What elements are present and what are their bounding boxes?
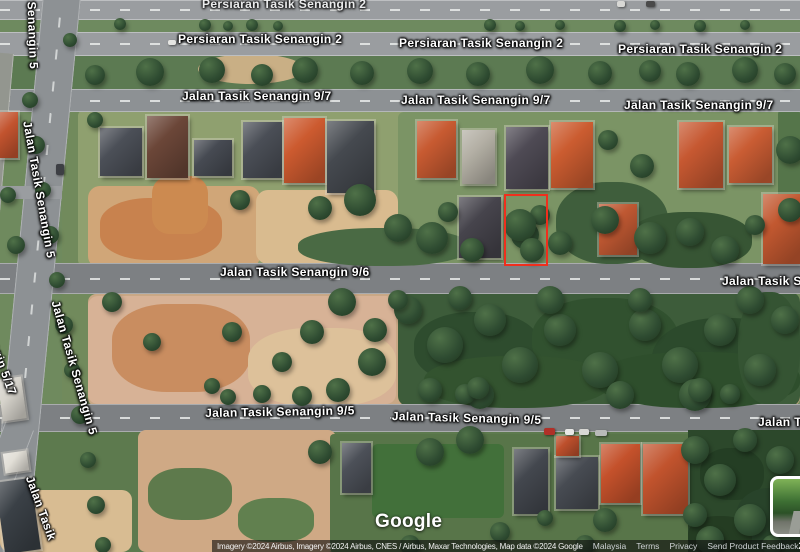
highlighted-parcel-outline (504, 194, 548, 266)
house-roof (462, 130, 495, 184)
tree (199, 19, 211, 31)
tree (515, 21, 525, 31)
house-roof (679, 122, 723, 188)
tree (683, 503, 707, 527)
tree (251, 64, 273, 86)
tree (220, 389, 236, 405)
tree (681, 436, 709, 464)
house-roof (194, 140, 232, 176)
tree (778, 198, 800, 222)
house-roof (342, 443, 371, 493)
tree (87, 112, 103, 128)
tree (416, 438, 444, 466)
tree (49, 272, 65, 288)
tree (484, 19, 496, 31)
tree (734, 504, 766, 536)
tree (416, 222, 448, 254)
tree (223, 21, 233, 31)
tree (745, 215, 765, 235)
tree (363, 318, 387, 342)
tree (771, 306, 799, 334)
house-roof (327, 121, 374, 193)
road-label: Jalan Tasik Senangin 9/5 (205, 403, 355, 420)
road-label: Persiaran Tasik Senangin 2 (618, 42, 782, 56)
tree (7, 236, 25, 254)
tree (222, 322, 242, 342)
tree (650, 20, 660, 30)
tree (143, 333, 161, 351)
tree (466, 62, 490, 86)
house-roof (147, 116, 188, 178)
tree (326, 378, 350, 402)
tree (308, 440, 332, 464)
tree (588, 61, 612, 85)
road-label: Persiaran Tasik Senangin 2 (202, 0, 366, 11)
tree (606, 381, 634, 409)
tree (85, 65, 105, 85)
tree (246, 19, 258, 31)
house-roof (601, 444, 640, 503)
terms-link[interactable]: Terms (636, 541, 659, 551)
road-label: Persiaran Tasik Senangin 2 (178, 32, 342, 46)
tree (639, 60, 661, 82)
tree (688, 378, 712, 402)
tree (704, 314, 736, 346)
tree (80, 452, 96, 468)
road-label: Jalan Tasik Senangin 9/7 (624, 98, 774, 112)
tree (776, 136, 800, 164)
car (168, 40, 176, 45)
tree (63, 33, 77, 47)
tree (537, 510, 553, 526)
tree (736, 286, 764, 314)
tree (711, 236, 739, 264)
terrain-detail (0, 0, 800, 552)
tree (114, 18, 126, 30)
tree (308, 196, 332, 220)
car (617, 1, 625, 7)
satellite-map-canvas[interactable]: Persiaran Tasik Senangin 2 Persiaran Tas… (0, 0, 800, 552)
house-roof (514, 449, 548, 514)
tree (662, 347, 698, 383)
tree (230, 190, 250, 210)
road-label: Jalan Tasik Senangin 9/6 (220, 265, 370, 279)
tree (630, 154, 654, 178)
region-link[interactable]: Malaysia (593, 541, 627, 551)
tree (694, 20, 706, 32)
tree (460, 238, 484, 262)
tree (350, 61, 374, 85)
tree (490, 522, 510, 542)
tree (676, 218, 704, 246)
street-view-preview[interactable] (770, 476, 800, 537)
tree (740, 20, 750, 30)
house-roof (3, 450, 30, 473)
tree (544, 314, 576, 346)
house-roof (729, 127, 772, 183)
tree (0, 187, 16, 203)
tree (273, 21, 283, 31)
tree (614, 20, 626, 32)
terrain-patch (148, 468, 232, 520)
tree (292, 386, 312, 406)
house-roof (556, 436, 579, 456)
tree (384, 214, 412, 242)
house-roof (551, 122, 593, 188)
tree (87, 496, 105, 514)
tree (591, 206, 619, 234)
tree (502, 347, 538, 383)
tree (629, 309, 661, 341)
tree (774, 63, 796, 85)
tree (136, 58, 164, 86)
google-logo[interactable]: Google (375, 511, 442, 533)
tree (467, 377, 489, 399)
imagery-credit: Imagery ©2024 Airbus, Imagery ©2024 Airb… (217, 542, 583, 551)
tree (474, 304, 506, 336)
house-roof (556, 457, 598, 509)
tree (766, 446, 794, 474)
tree (22, 92, 38, 108)
road-label: Persiaran Tasik Senangin 2 (399, 36, 563, 50)
feedback-link[interactable]: Send Product Feedback (707, 541, 798, 551)
road-label: Jalan Tasik Senangin 9/7 (401, 93, 551, 107)
car (56, 164, 64, 175)
terrain-patch (238, 498, 314, 542)
house-roof (284, 118, 325, 183)
tree (344, 184, 376, 216)
road-label: Jalan Tasik Senangin 9/7 (182, 89, 332, 103)
attribution-bar: Imagery ©2024 Airbus, Imagery ©2024 Airb… (212, 540, 800, 552)
road-label: Jalan Tasik Senangin 9/6 (722, 274, 800, 288)
tree (456, 426, 484, 454)
tree (407, 58, 433, 84)
house-roof (506, 127, 548, 189)
house-roof (0, 112, 18, 158)
car (544, 428, 555, 435)
tree (593, 508, 617, 532)
tree (526, 56, 554, 84)
tree (328, 288, 356, 316)
road-label: Jalan Tasik Senangin 9/5 (758, 415, 800, 429)
tree (358, 348, 386, 376)
tree (598, 130, 618, 150)
tree (744, 354, 776, 386)
tree (536, 286, 564, 314)
tree (704, 464, 736, 496)
tree (733, 428, 757, 452)
tree (427, 327, 463, 363)
tree (292, 57, 318, 83)
car (595, 430, 607, 436)
tree (448, 286, 472, 310)
tree (418, 378, 442, 402)
tree (628, 288, 652, 312)
tree (732, 57, 758, 83)
tree (634, 222, 666, 254)
tree (388, 290, 408, 310)
tree (204, 378, 220, 394)
house-roof (100, 128, 142, 176)
tree (555, 20, 565, 30)
house-roof (243, 122, 282, 178)
car (579, 429, 589, 435)
car (565, 429, 574, 435)
tree (272, 352, 292, 372)
tree (720, 384, 740, 404)
car (646, 1, 655, 7)
tree (300, 320, 324, 344)
tree (95, 537, 111, 552)
tree (102, 292, 122, 312)
house-roof (417, 121, 456, 178)
tree (199, 57, 225, 83)
tree (438, 202, 458, 222)
tree (676, 62, 700, 86)
tree (548, 231, 572, 255)
tree (253, 385, 271, 403)
privacy-link[interactable]: Privacy (669, 541, 697, 551)
